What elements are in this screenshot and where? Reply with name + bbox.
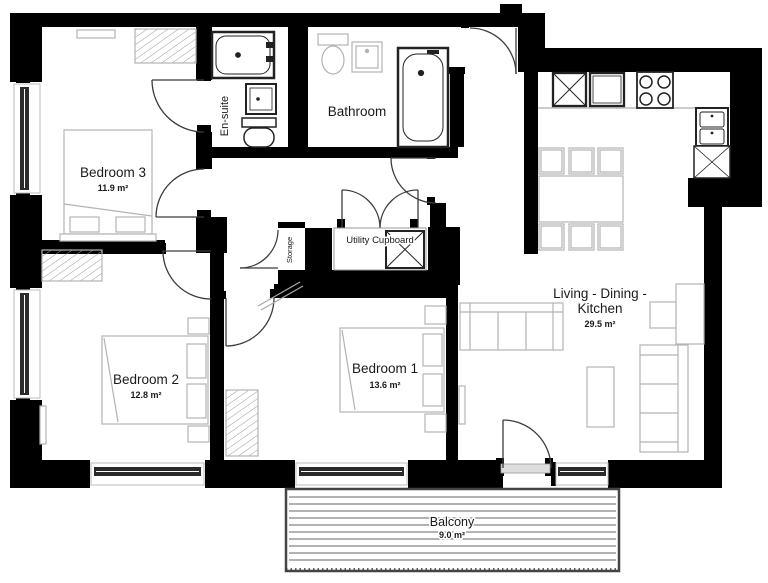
label-bedroom2: Bedroom 2 — [113, 372, 179, 387]
label-storage: Storage — [285, 237, 294, 263]
wardrobe-bedroom1 — [226, 390, 258, 456]
bathtub-bathroom — [398, 48, 448, 147]
toilet-ensuite — [242, 118, 276, 147]
door-ensuite — [152, 80, 204, 132]
sofa-living — [460, 303, 563, 350]
floor-plan: Bedroom 3 11.9 m² Bedroom 2 12.8 m² Bedr… — [0, 0, 768, 583]
sideboard — [676, 284, 704, 344]
area-bedroom1: 13.6 m² — [369, 380, 400, 390]
area-bedroom3: 11.9 m² — [98, 183, 129, 193]
wardrobe-bedroom2 — [42, 250, 102, 281]
sink-bathroom — [352, 42, 382, 72]
hob — [637, 72, 673, 108]
door-bathroom — [470, 28, 516, 74]
radiator-living — [459, 386, 465, 424]
wardrobe-bedroom3 — [77, 29, 196, 63]
sink-ensuite — [246, 84, 276, 114]
sofa-right — [640, 345, 688, 452]
door-storage — [240, 230, 278, 268]
balcony-door-threshold — [501, 464, 550, 473]
label-bathroom: Bathroom — [328, 104, 387, 119]
label-living-line1: Living - Dining - — [553, 286, 647, 301]
area-bedroom2: 12.8 m² — [130, 390, 161, 400]
floor-plan-drawing: Bedroom 3 11.9 m² Bedroom 2 12.8 m² Bedr… — [0, 0, 768, 583]
area-living: 29.5 m² — [584, 319, 615, 329]
door-balcony — [503, 420, 551, 468]
area-balcony: 9.0 m² — [439, 530, 465, 540]
door-bedroom3 — [156, 169, 204, 217]
doors-utility-cupboard — [342, 190, 418, 228]
label-bedroom3: Bedroom 3 — [80, 165, 146, 180]
coffee-table — [587, 367, 614, 427]
label-bedroom1: Bedroom 1 — [352, 361, 418, 376]
label-living-line2: Kitchen — [577, 301, 622, 316]
side-table — [650, 302, 676, 328]
bath-ensuite — [212, 32, 274, 78]
label-utility-cupboard: Utility Cupboard — [346, 235, 414, 246]
label-balcony: Balcony — [430, 515, 475, 529]
washing-machine — [553, 73, 586, 106]
door-bedroom1 — [226, 298, 274, 346]
kitchen-sink — [696, 108, 728, 146]
oven — [590, 73, 624, 106]
dining-table-and-chairs — [539, 148, 623, 250]
radiator-bedroom2 — [40, 406, 46, 444]
door-bedroom2 — [163, 251, 211, 299]
toilet-bathroom — [318, 34, 348, 74]
label-ensuite: En-suite — [219, 96, 231, 136]
corner-unit — [694, 146, 730, 178]
